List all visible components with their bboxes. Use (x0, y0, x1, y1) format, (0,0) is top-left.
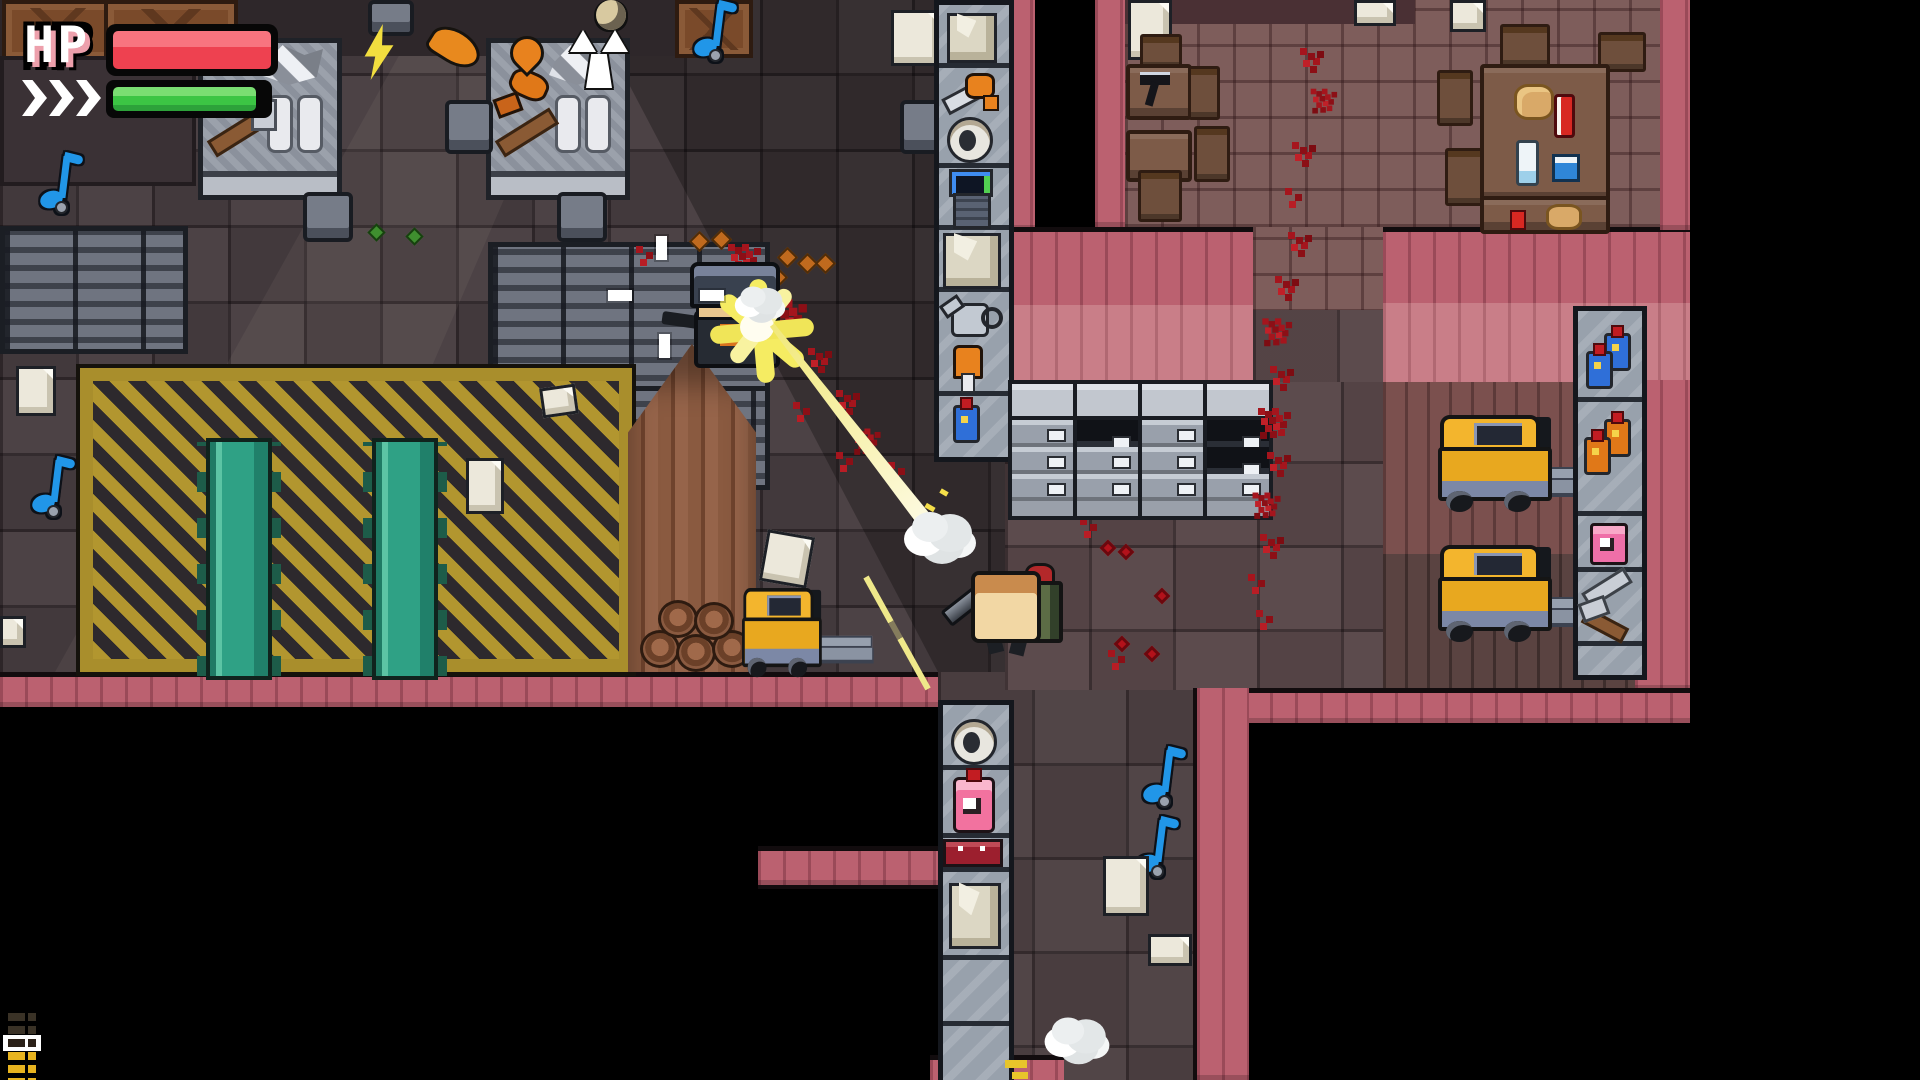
conveyor-belt (372, 438, 438, 680)
blood-splatter (1253, 493, 1259, 499)
smoke-puff (1052, 1018, 1084, 1045)
paper-pickup (1354, 0, 1396, 26)
health-bar (106, 24, 278, 76)
can-handle (981, 307, 1003, 329)
red-case (943, 839, 1003, 867)
paper-pickup (759, 529, 815, 589)
bread-loaf (1514, 84, 1554, 120)
trophy-wing (570, 30, 596, 52)
forklift (1438, 415, 1588, 515)
blood-splatter (1275, 276, 1282, 283)
trophy-icon (570, 0, 628, 88)
mug (951, 719, 997, 765)
paper-box (943, 233, 1001, 289)
bread-loaf (1546, 204, 1582, 230)
ketchup-bottle (1510, 210, 1526, 230)
storage-shelf-corridor (938, 700, 1014, 1080)
wall-warehouse-south (1245, 688, 1690, 723)
storage-shelf-right (1573, 306, 1647, 680)
storage-shelf-east (934, 0, 1014, 462)
lamp-arm (1145, 81, 1159, 106)
ammo-pip (28, 1026, 36, 1034)
game-viewport[interactable]: HP (0, 0, 1920, 1080)
blue-cup (1552, 154, 1580, 182)
health-fill (113, 31, 271, 69)
blood-splatter (836, 452, 843, 459)
paper-pickup (1148, 934, 1192, 966)
mug (947, 117, 993, 163)
chair (1445, 148, 1483, 206)
blood-splatter (793, 402, 800, 409)
blood-splatter (1260, 534, 1267, 541)
ammo-pip-row (6, 1025, 38, 1035)
conveyor-belt (206, 438, 272, 680)
blue-bottle (953, 405, 980, 443)
chair (1437, 70, 1473, 126)
wall-face-south-west (1005, 305, 1253, 382)
blood-splatter (1285, 188, 1292, 195)
cafeteria-table-large (1480, 64, 1610, 204)
chair (1500, 24, 1550, 68)
tool-stem (961, 373, 975, 393)
ammo-pip-row (6, 1064, 38, 1074)
metal-plate-icon (297, 95, 323, 153)
desk-lamp (1138, 72, 1174, 110)
forklift (742, 588, 847, 680)
cafeteria-table-low (1480, 196, 1610, 234)
ammo-pip (8, 1039, 25, 1047)
blood-splatter (1311, 89, 1317, 95)
ammo-pip-row (6, 1051, 38, 1061)
case-pip (980, 846, 985, 851)
locker-bank (0, 226, 188, 354)
axe-icon (943, 73, 993, 109)
metal-plate-icon (585, 95, 611, 153)
stool (445, 100, 493, 154)
blue-bottle (1586, 351, 1613, 389)
paper-pickup (0, 616, 26, 648)
ammo-pip (28, 1039, 36, 1047)
paper-pickup (1450, 0, 1486, 32)
pink-sauce-bottle (953, 777, 995, 833)
chair (1188, 66, 1220, 120)
chair (1194, 126, 1230, 182)
music-note-pickup (1143, 748, 1179, 806)
dash-chevron-icon (76, 80, 101, 116)
filing-cabinet (1073, 380, 1143, 520)
doorway-floor (1253, 227, 1383, 312)
blood-splatter (1258, 408, 1265, 415)
smoke-puff (740, 287, 765, 308)
blood-splatter (1267, 452, 1274, 459)
blood-splatter (1248, 574, 1255, 581)
ammo-pip (8, 1026, 25, 1034)
wall-cafeteria-west (1095, 0, 1125, 227)
stool (303, 192, 353, 242)
trophy-wing (602, 30, 628, 52)
axe-chip (983, 95, 999, 111)
orange-bottle (1584, 437, 1611, 475)
paper-pickup (16, 366, 56, 416)
milk-bottle (1516, 140, 1539, 186)
blood-splatter (1270, 366, 1277, 373)
metal-plate-icon (555, 95, 581, 153)
player (963, 563, 1063, 668)
pink-jar (1590, 523, 1628, 565)
wall-cafeteria-east (1660, 0, 1690, 230)
ammo-pip-row (6, 1038, 38, 1048)
energy-fill (113, 87, 256, 111)
wall-cafeteria-south-west (1005, 227, 1253, 312)
void-gap-north (1035, 0, 1095, 230)
music-note-pickup (32, 458, 68, 516)
blood-splatter (1292, 142, 1299, 149)
ammo-pip (8, 1013, 25, 1021)
filing-cabinet (1203, 380, 1273, 520)
smoke-puff (912, 512, 948, 542)
computer-tower (953, 193, 991, 229)
ammo-pip (8, 1065, 25, 1073)
wall-corridor-east (1193, 688, 1249, 1080)
log-end (658, 600, 698, 638)
music-note-pickup (40, 154, 76, 212)
ammo-pip (8, 1052, 25, 1060)
energy-bar (106, 80, 272, 118)
trophy-base (586, 54, 612, 88)
flash-core (740, 312, 774, 342)
paper-box (949, 883, 1001, 949)
crosshair[interactable] (600, 230, 730, 355)
paper-pickup (1103, 856, 1149, 916)
forklift (1438, 545, 1588, 645)
case-pip (958, 846, 963, 851)
dash-chevrons (22, 80, 103, 120)
ammo-pip (28, 1065, 36, 1073)
jar-label (1600, 538, 1614, 551)
crosshair-tick-bottom (659, 334, 670, 358)
blood-splatter (1256, 610, 1263, 617)
crosshair-tick-left (608, 290, 632, 301)
watering-can (943, 297, 995, 339)
wall-segment-southwest (758, 846, 938, 889)
crosshair-tick-right (700, 290, 724, 301)
filing-cabinet (1008, 380, 1078, 520)
paper-pickup (539, 384, 579, 419)
player-head (971, 571, 1041, 643)
music-note-pickup (694, 2, 730, 60)
blood-splatter (1300, 48, 1307, 55)
crosshair-tick-top (656, 236, 667, 260)
ketchup-bottle (1554, 94, 1575, 138)
ammo-pip-strip (6, 1012, 38, 1080)
filing-cabinet (1138, 380, 1208, 520)
bottle-label (963, 798, 981, 814)
ammo-pip (28, 1013, 36, 1021)
log-end (694, 602, 734, 640)
dash-chevron-icon (49, 80, 74, 116)
wall-cafeteria-south-east (1383, 227, 1690, 310)
dropped-pickup-sparkle (1012, 1072, 1028, 1079)
trophy-horn (596, 0, 626, 30)
hp-label: HP (24, 16, 90, 74)
blood-splatter (1262, 318, 1268, 324)
paper-pickup (466, 458, 504, 514)
chair (1138, 170, 1182, 222)
paper-box (947, 13, 997, 63)
blood-splatter (1288, 232, 1295, 239)
blood-splatter (1108, 650, 1115, 657)
computer-terminal (947, 169, 993, 225)
stool (368, 0, 414, 36)
dash-chevron-icon (22, 80, 47, 116)
blood-splatter (836, 390, 843, 397)
dropped-pickup-sparkle (1005, 1060, 1027, 1068)
cafeteria-table (1126, 64, 1192, 120)
ammo-pip (28, 1052, 36, 1060)
bottle-cap (966, 768, 982, 782)
ammo-pip-row (6, 1012, 38, 1022)
